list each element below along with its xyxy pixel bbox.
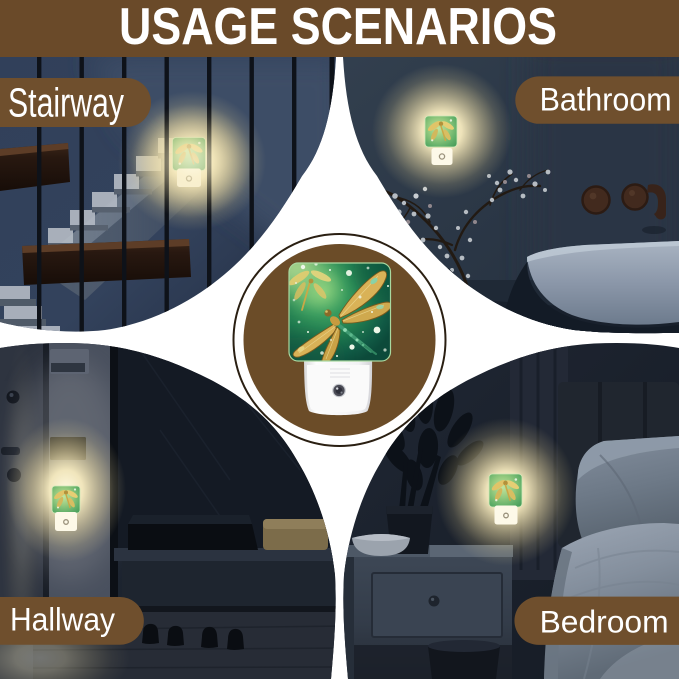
svg-text:USAGE SCENARIOS: USAGE SCENARIOS	[119, 0, 557, 55]
svg-text:Stairway: Stairway	[8, 80, 125, 126]
svg-text:Hallway: Hallway	[10, 600, 116, 637]
svg-text:Bedroom: Bedroom	[540, 603, 669, 639]
svg-text:Bathroom: Bathroom	[540, 81, 672, 117]
